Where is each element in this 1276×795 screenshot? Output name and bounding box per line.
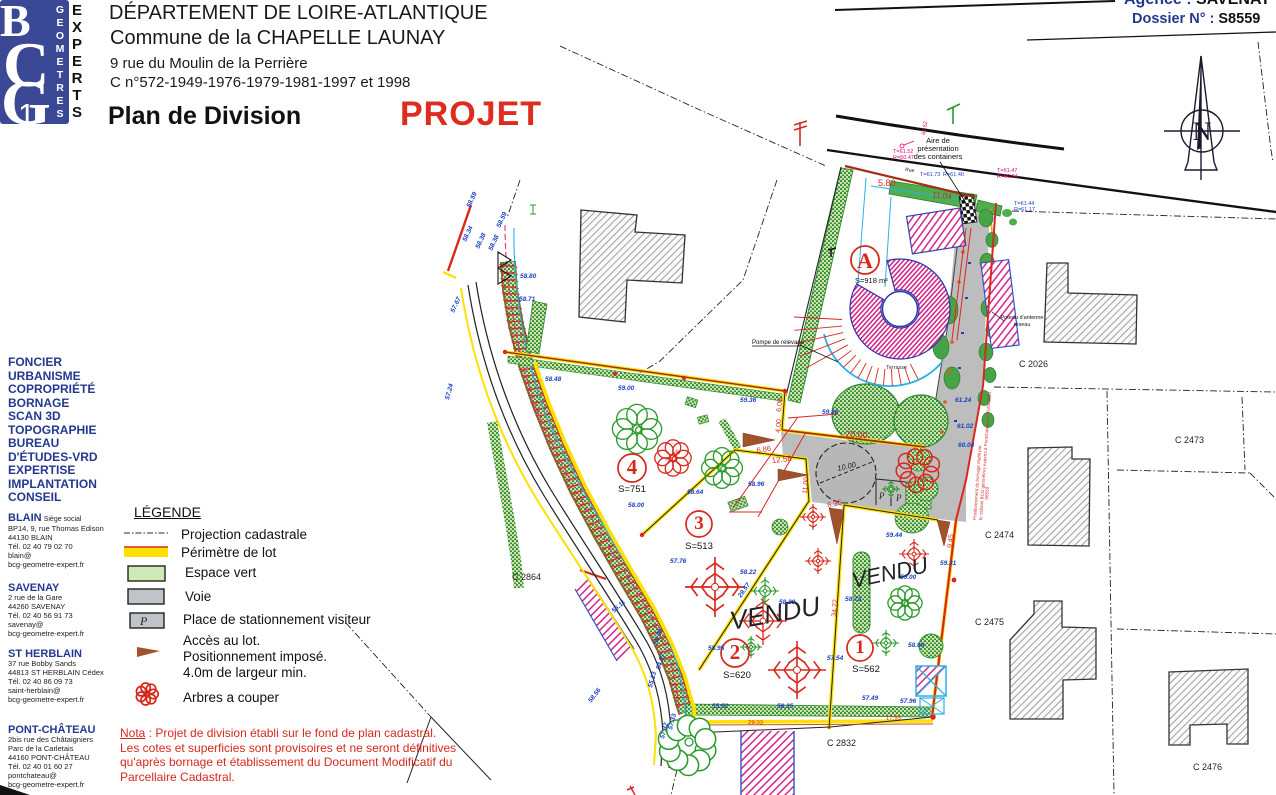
svg-text:S=562: S=562 bbox=[852, 664, 880, 675]
svg-text:29.03: 29.03 bbox=[748, 720, 764, 727]
svg-text:P: P bbox=[895, 493, 902, 503]
svg-text:61.52: 61.52 bbox=[921, 121, 929, 136]
svg-text:R: R bbox=[72, 70, 83, 87]
svg-text:57.76: 57.76 bbox=[670, 558, 687, 565]
svg-text:58.59: 58.59 bbox=[495, 211, 508, 229]
svg-text:E: E bbox=[56, 17, 63, 29]
svg-text:61.24: 61.24 bbox=[955, 397, 972, 404]
svg-text:Poteau d'antenne: Poteau d'antenne bbox=[1001, 315, 1044, 321]
svg-text:T: T bbox=[57, 69, 64, 81]
svg-text:S8559: S8559 bbox=[984, 486, 990, 500]
svg-text:Pompe de relevage: Pompe de relevage bbox=[752, 340, 805, 346]
svg-text:59.44: 59.44 bbox=[886, 532, 903, 539]
svg-text:61.02: 61.02 bbox=[957, 423, 974, 430]
svg-text:C 2864: C 2864 bbox=[512, 572, 541, 582]
svg-text:P: P bbox=[878, 491, 885, 501]
svg-text:5.80: 5.80 bbox=[878, 178, 896, 188]
svg-text:1: 1 bbox=[855, 637, 865, 658]
svg-text:T: T bbox=[72, 87, 81, 104]
svg-text:58.39: 58.39 bbox=[779, 599, 796, 606]
svg-text:58.96: 58.96 bbox=[748, 481, 765, 488]
svg-text:57.49: 57.49 bbox=[862, 695, 879, 702]
svg-text:R=60.54: R=60.54 bbox=[997, 174, 1018, 180]
svg-text:6.00: 6.00 bbox=[776, 398, 784, 412]
svg-text:58.71: 58.71 bbox=[519, 296, 536, 303]
svg-text:58.68: 58.68 bbox=[908, 642, 925, 649]
svg-text:S=620: S=620 bbox=[723, 670, 751, 681]
svg-text:E: E bbox=[56, 95, 63, 107]
svg-text:T=61.73: T=61.73 bbox=[920, 172, 940, 178]
svg-text:58.38: 58.38 bbox=[474, 232, 487, 250]
svg-text:9.45: 9.45 bbox=[947, 534, 955, 548]
svg-text:20.00: 20.00 bbox=[845, 429, 868, 440]
svg-text:59.00: 59.00 bbox=[618, 385, 635, 392]
svg-text:R=61.40: R=61.40 bbox=[943, 172, 964, 178]
svg-text:58.73: 58.73 bbox=[845, 596, 862, 603]
svg-text:R=61.17: R=61.17 bbox=[1014, 207, 1035, 213]
svg-text:R=60.47: R=60.47 bbox=[893, 155, 914, 161]
svg-text:58.35: 58.35 bbox=[777, 703, 794, 710]
svg-text:57.67: 57.67 bbox=[449, 296, 462, 314]
svg-text:57.54: 57.54 bbox=[827, 655, 844, 662]
svg-text:S=751: S=751 bbox=[618, 484, 646, 495]
svg-text:N: N bbox=[1193, 117, 1212, 146]
svg-text:R: R bbox=[56, 82, 64, 94]
svg-text:58.64: 58.64 bbox=[687, 489, 704, 496]
svg-text:P: P bbox=[72, 36, 82, 53]
svg-text:C 2474: C 2474 bbox=[985, 530, 1014, 540]
svg-text:1: 1 bbox=[18, 97, 35, 130]
svg-text:12.58: 12.58 bbox=[771, 454, 792, 465]
svg-text:58.95: 58.95 bbox=[708, 645, 725, 652]
svg-text:60.04: 60.04 bbox=[958, 442, 975, 449]
svg-text:C 2832: C 2832 bbox=[827, 738, 856, 748]
svg-text:E: E bbox=[72, 53, 82, 70]
svg-text:57.96: 57.96 bbox=[900, 698, 917, 705]
svg-text:4: 4 bbox=[627, 455, 638, 479]
svg-text:58.22: 58.22 bbox=[740, 569, 757, 576]
svg-text:4.00: 4.00 bbox=[775, 419, 783, 433]
svg-text:58.59: 58.59 bbox=[465, 191, 478, 209]
svg-text:P: P bbox=[139, 614, 148, 628]
svg-text:11.00: 11.00 bbox=[802, 477, 810, 495]
svg-text:59.36: 59.36 bbox=[740, 397, 757, 404]
svg-text:des containers: des containers bbox=[914, 152, 963, 161]
svg-text:C 2475: C 2475 bbox=[975, 617, 1004, 627]
svg-text:58.00: 58.00 bbox=[628, 502, 645, 509]
svg-text:3: 3 bbox=[694, 513, 704, 534]
svg-text:réseau: réseau bbox=[1014, 322, 1031, 328]
svg-text:E: E bbox=[56, 56, 63, 68]
svg-text:S=918 m²: S=918 m² bbox=[855, 276, 888, 285]
svg-text:Rue: Rue bbox=[905, 167, 915, 174]
svg-text:S: S bbox=[56, 108, 63, 120]
svg-text:59.31: 59.31 bbox=[940, 560, 957, 567]
svg-text:Terrasse: Terrasse bbox=[886, 365, 907, 371]
svg-text:C 2476: C 2476 bbox=[1193, 762, 1222, 772]
svg-text:O: O bbox=[56, 30, 64, 42]
svg-text:2: 2 bbox=[730, 640, 741, 664]
svg-text:58.56: 58.56 bbox=[587, 687, 603, 704]
svg-text:58.48: 58.48 bbox=[545, 376, 562, 383]
svg-text:A: A bbox=[857, 248, 873, 273]
svg-text:58.80: 58.80 bbox=[520, 273, 537, 280]
svg-text:59.86: 59.86 bbox=[822, 409, 839, 416]
svg-text:57.24: 57.24 bbox=[444, 383, 455, 401]
svg-text:E: E bbox=[72, 2, 82, 19]
svg-text:X: X bbox=[72, 19, 82, 36]
svg-text:59.00: 59.00 bbox=[900, 574, 917, 581]
svg-text:58.38: 58.38 bbox=[487, 234, 500, 252]
svg-text:G: G bbox=[56, 4, 64, 16]
svg-text:C 2026: C 2026 bbox=[1019, 359, 1048, 369]
svg-text:S: S bbox=[72, 104, 82, 121]
svg-text:55.13: 55.13 bbox=[647, 671, 658, 689]
svg-text:17.93: 17.93 bbox=[886, 715, 902, 722]
svg-text:55.52: 55.52 bbox=[712, 703, 729, 710]
svg-text:M: M bbox=[56, 43, 65, 55]
svg-text:C 2473: C 2473 bbox=[1175, 435, 1204, 445]
svg-text:S=513: S=513 bbox=[685, 541, 713, 552]
